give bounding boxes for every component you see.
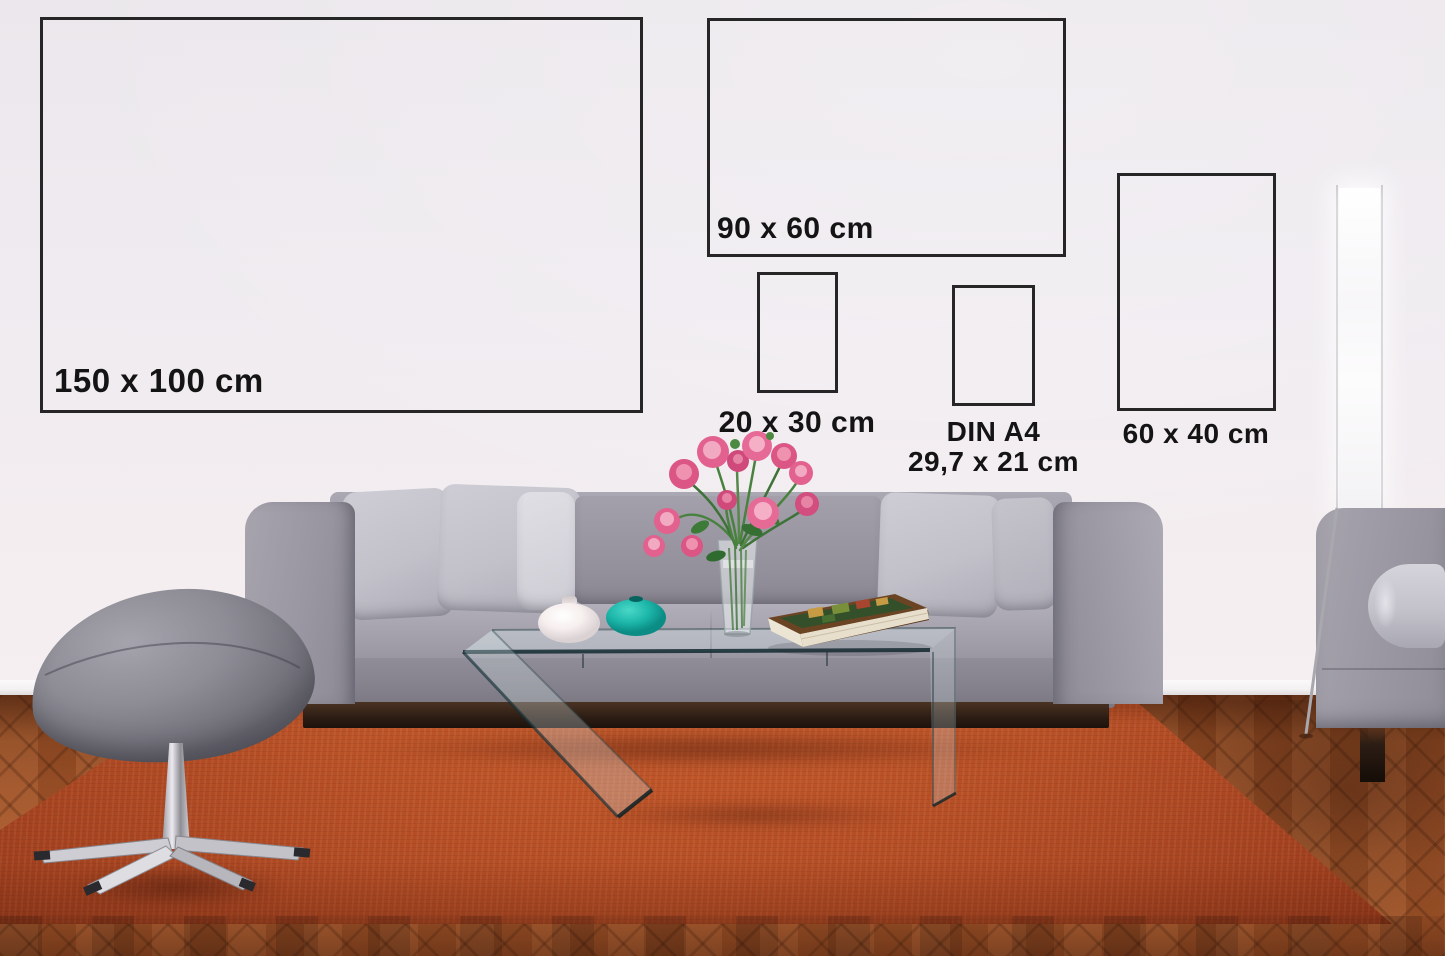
sofa-plinth [303, 702, 1109, 728]
teal-vase-mouth [629, 596, 643, 602]
sofa [245, 484, 1163, 742]
second-sofa [1316, 500, 1445, 790]
floor-lamp-rod [1381, 185, 1383, 513]
frame-label-20x30: 20 x 30 cm [702, 406, 892, 440]
poster-frame-150x100 [40, 17, 643, 413]
seat-seam [710, 608, 712, 664]
sofa-back-cushion [575, 496, 881, 604]
sofa-pillow [991, 497, 1057, 611]
bolster-pillow [1368, 564, 1445, 648]
living-room-mockup: 150 x 100 cm 90 x 60 cm 20 x 30 cm DIN A… [0, 0, 1445, 956]
table-shadow [540, 795, 970, 835]
frame-label-din-a4-line1: DIN A4 [883, 417, 1104, 447]
frame-label-din-a4: DIN A4 29,7 x 21 cm [883, 417, 1104, 477]
frame-label-60x40: 60 x 40 cm [1101, 418, 1291, 450]
second-sofa-seam [1322, 668, 1445, 670]
teal-vase [606, 599, 666, 636]
poster-frame-20x30 [757, 272, 838, 393]
floor-lamp-rod [1336, 185, 1338, 513]
floor-lamp [1339, 188, 1380, 510]
sofa-pillow [517, 492, 575, 610]
footstool [20, 585, 330, 935]
sofa-armrest-right [1053, 502, 1163, 704]
second-sofa-leg [1360, 728, 1385, 782]
frame-label-din-a4-line2: 29,7 x 21 cm [883, 447, 1104, 477]
white-vase [538, 603, 600, 643]
sofa-front [297, 658, 1115, 708]
frame-label-90x60: 90 x 60 cm [717, 212, 874, 246]
frame-label-150x100: 150 x 100 cm [54, 362, 264, 400]
poster-frame-60x40 [1117, 173, 1276, 411]
poster-frame-din-a4 [952, 285, 1035, 406]
sofa-pillow [877, 492, 1001, 618]
